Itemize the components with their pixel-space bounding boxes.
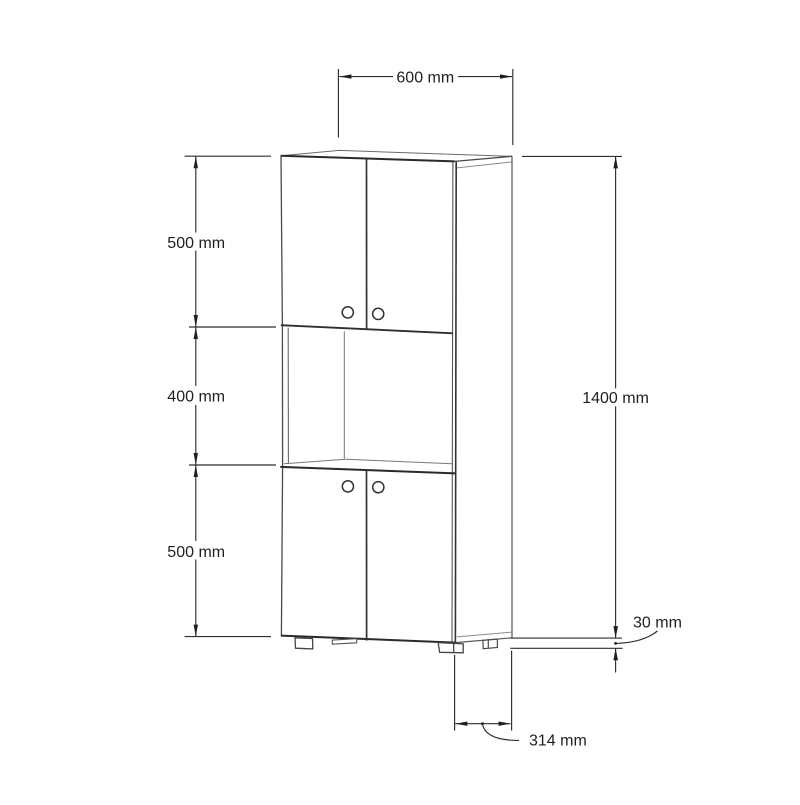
svg-text:600 mm: 600 mm <box>396 70 454 87</box>
svg-text:500 mm: 500 mm <box>167 544 225 561</box>
svg-text:30 mm: 30 mm <box>633 615 682 632</box>
svg-text:400 mm: 400 mm <box>167 389 225 406</box>
svg-text:1400 mm: 1400 mm <box>582 390 649 407</box>
svg-text:500 mm: 500 mm <box>167 235 225 252</box>
svg-text:314 mm: 314 mm <box>529 733 587 750</box>
